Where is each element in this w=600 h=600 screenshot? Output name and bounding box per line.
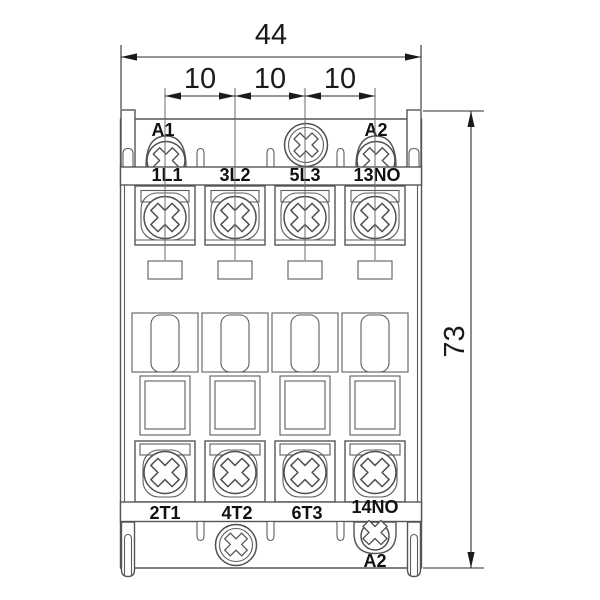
arrowhead-icon bbox=[305, 92, 321, 99]
terminal-label-2t1: 2T1 bbox=[149, 503, 180, 523]
test-windows bbox=[148, 261, 392, 279]
coil-label-a2-top: A2 bbox=[364, 120, 387, 140]
terminal-label-13no: 13NO bbox=[353, 165, 400, 185]
terminal-label-6t3: 6T3 bbox=[291, 503, 322, 523]
center-screw-bottom bbox=[216, 525, 257, 566]
arrowhead-right-icon bbox=[405, 53, 421, 60]
center-screw-top bbox=[285, 124, 328, 167]
drawing-svg: 1L1 3L2 5L3 13NO bbox=[0, 0, 600, 600]
arrowhead-icon bbox=[219, 92, 235, 99]
arrowhead-down-icon bbox=[467, 552, 474, 568]
arrowhead-left-icon bbox=[121, 53, 137, 60]
arrowhead-icon bbox=[289, 92, 305, 99]
arrowhead-icon bbox=[359, 92, 375, 99]
dim-text-overall-height: 73 bbox=[439, 325, 471, 357]
dim-text-pitch-3: 10 bbox=[324, 63, 356, 95]
bottom-terminal-block-3 bbox=[275, 441, 335, 502]
bottom-terminal-block-1 bbox=[135, 441, 195, 502]
bottom-terminal-block-2 bbox=[205, 441, 265, 502]
dim-text-pitch-1: 10 bbox=[184, 63, 216, 95]
terminal-label-14no: 14NO bbox=[351, 497, 398, 517]
arrowhead-up-icon bbox=[467, 111, 474, 127]
arrowhead-icon bbox=[165, 92, 181, 99]
housing-windows bbox=[140, 376, 400, 435]
vent-slots bbox=[132, 313, 408, 372]
dim-text-pitch-2: 10 bbox=[254, 63, 286, 95]
dimension-height-73: 73 bbox=[423, 111, 484, 568]
coil-label-a2-bottom: A2 bbox=[363, 551, 386, 571]
arrowhead-icon bbox=[235, 92, 251, 99]
contactor-dimension-drawing: 1L1 3L2 5L3 13NO bbox=[0, 0, 600, 600]
coil-label-a1: A1 bbox=[151, 120, 174, 140]
terminal-label-1l1: 1L1 bbox=[151, 165, 182, 185]
terminal-label-4t2: 4T2 bbox=[221, 503, 252, 523]
dimension-pitch-10s: 10 10 10 bbox=[165, 63, 375, 100]
dim-text-overall-width: 44 bbox=[255, 19, 287, 51]
bottom-terminal-block-4 bbox=[345, 441, 405, 502]
